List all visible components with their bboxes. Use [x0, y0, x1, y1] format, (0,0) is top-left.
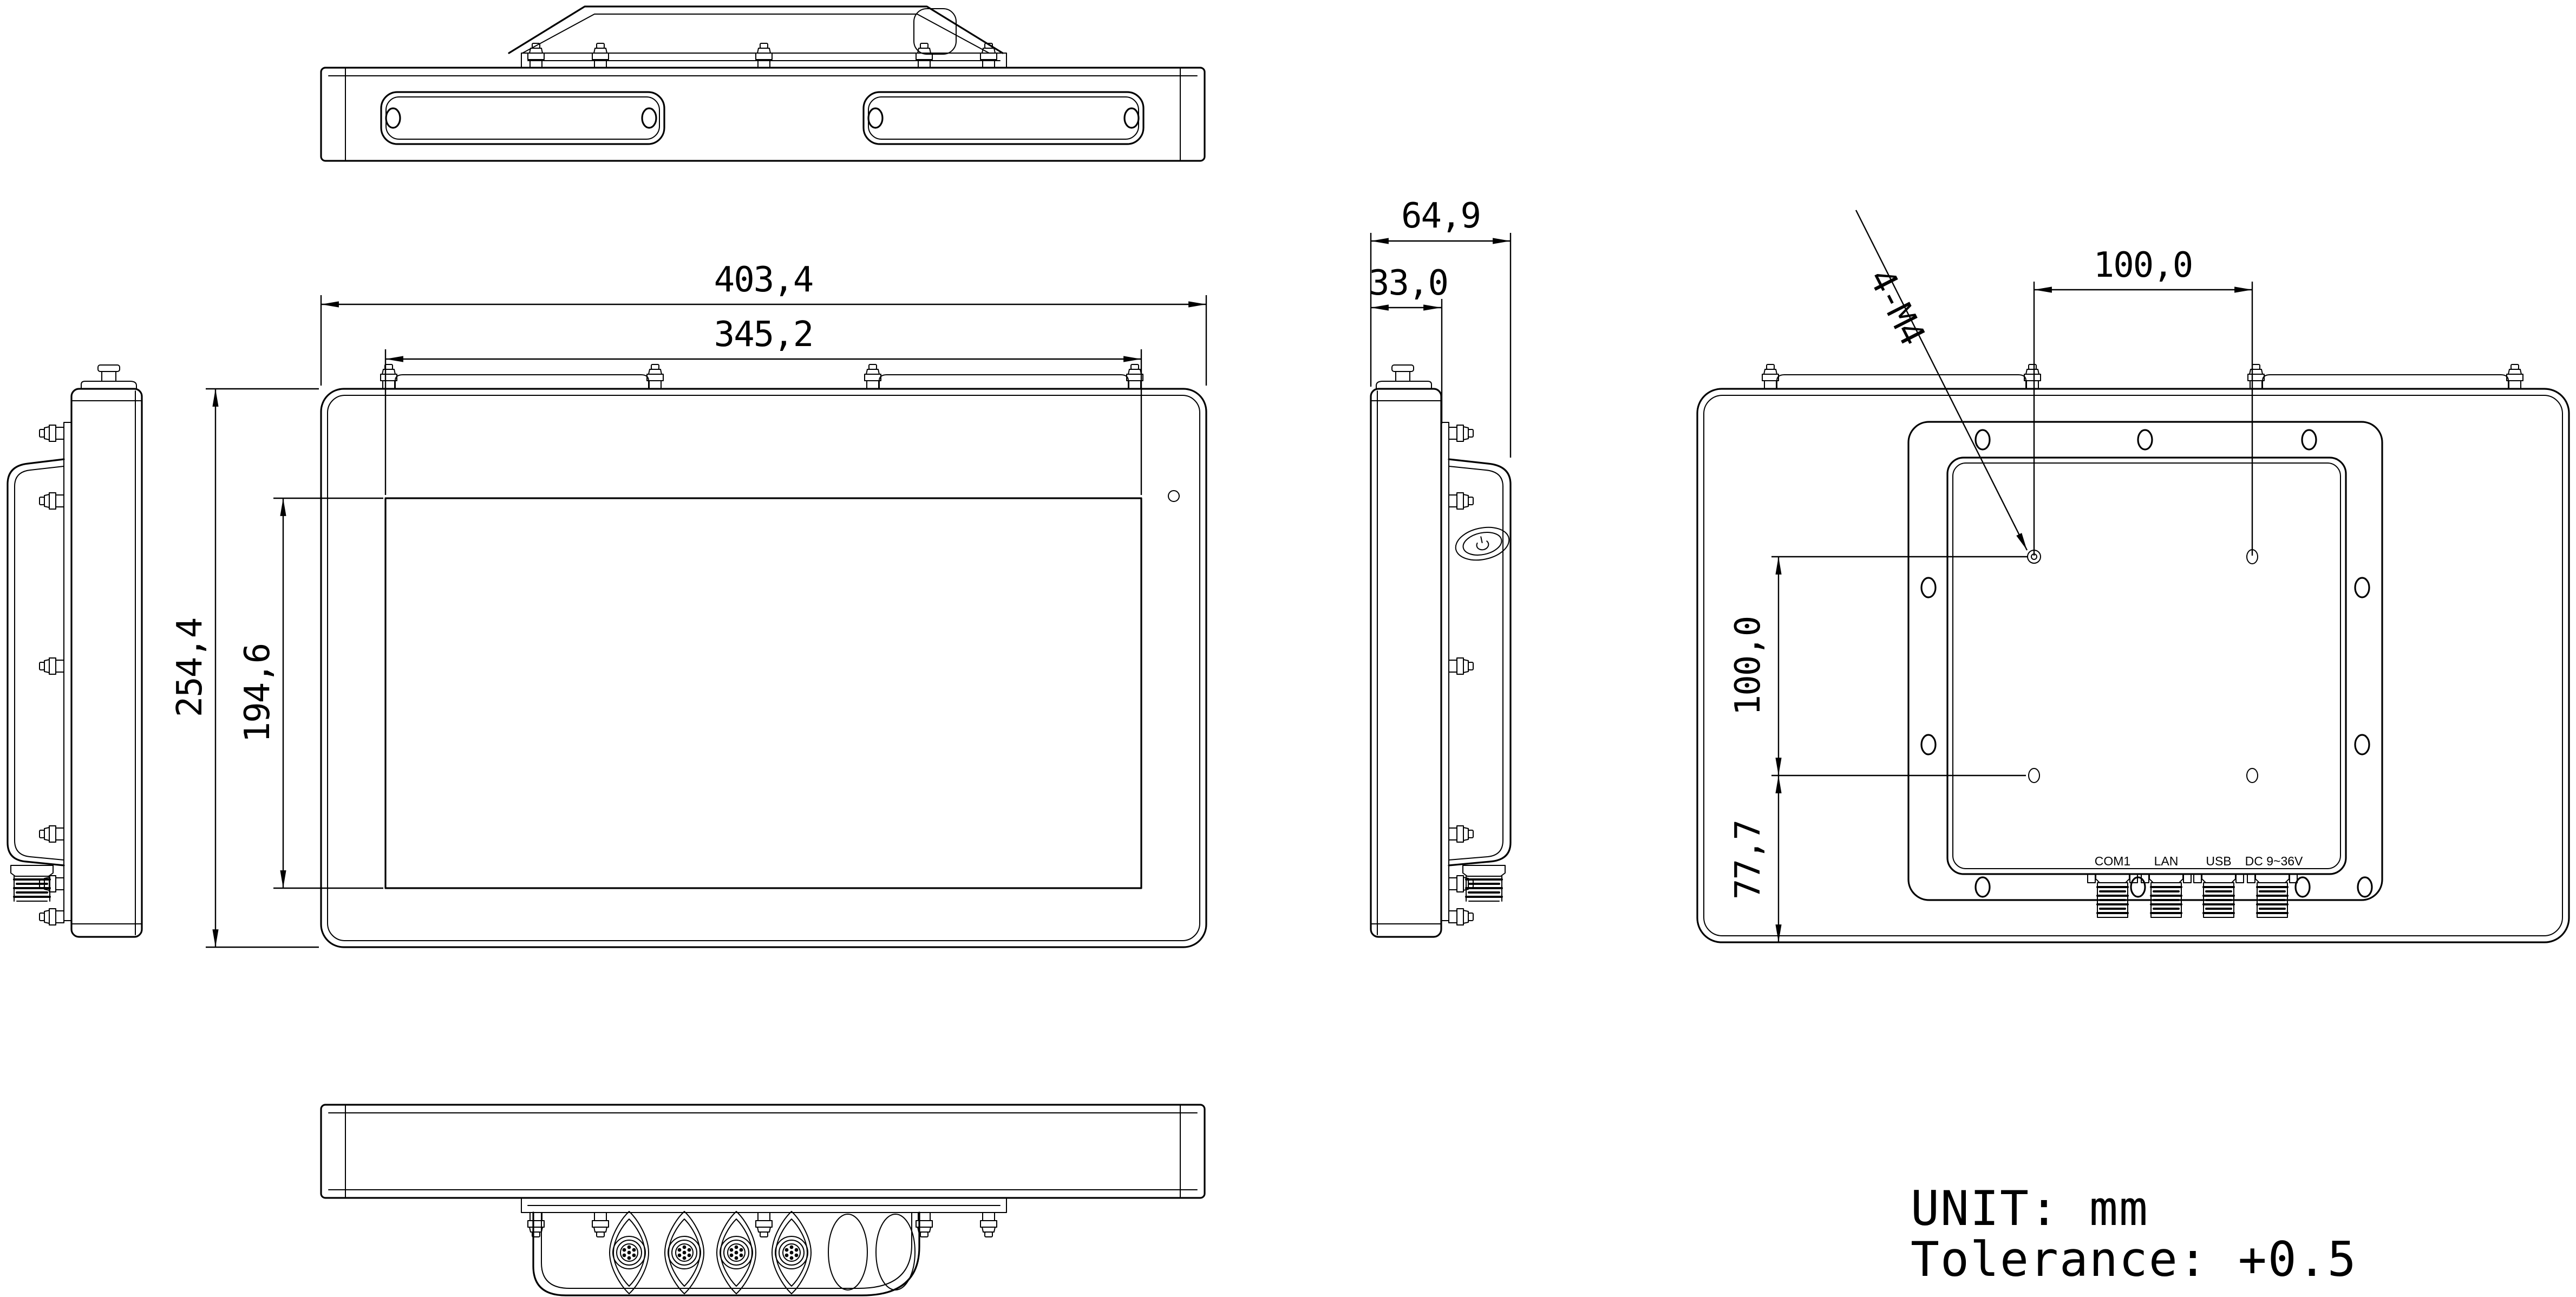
- m12-connector-icon: [610, 1211, 649, 1294]
- screw-icon: [647, 364, 663, 389]
- drawing-sheet: 403,4 345,2 254,4 194,6: [0, 0, 2576, 1297]
- top-view: [321, 6, 1205, 161]
- screw-icon: [40, 826, 64, 842]
- dim-overall-height-label: 254,4: [170, 618, 210, 718]
- dim-overall-width-label: 403,4: [714, 260, 813, 300]
- drawing-notes: UNIT: mm Tolerance: +0.5: [1911, 1181, 2357, 1287]
- front-view: [321, 364, 1206, 947]
- oval-hole-icon: [2138, 430, 2152, 449]
- screw-icon: [40, 909, 64, 925]
- oval-hole-icon: [386, 108, 400, 128]
- screw-icon: [1449, 425, 1473, 441]
- top-view-flange: [521, 43, 1006, 68]
- screw-icon: [1449, 826, 1473, 842]
- right-side-view: [1371, 365, 1512, 937]
- oval-hole-icon: [2355, 578, 2369, 597]
- oval-hole-icon: [2355, 735, 2369, 754]
- clamp-bracket: [1777, 375, 2026, 388]
- port-label-usb: USB: [2206, 854, 2231, 868]
- connector-com1: [2088, 874, 2137, 917]
- side-flange: [1441, 422, 1449, 921]
- light-sensor-icon: [1168, 491, 1179, 501]
- dim-front-depth-label: 33,0: [1369, 263, 1448, 303]
- connector-usb: [2194, 874, 2244, 917]
- dim-total-depth-label: 64,9: [1401, 196, 1480, 236]
- rear-enclosure-recess-inner: [1953, 463, 2340, 869]
- screw-icon: [40, 493, 64, 509]
- depth-dimensions: 64,9 33,0: [1369, 196, 1511, 458]
- clamp-bracket: [395, 375, 649, 388]
- front-top-clamps: [381, 364, 1143, 389]
- side-screws: [40, 425, 64, 925]
- callout-vesa-thread-label: 4-M4: [1861, 263, 1932, 351]
- vesa-hole-icon: [2247, 768, 2258, 783]
- m12-connector-icon: [772, 1211, 811, 1294]
- top-recess-right: [864, 92, 1143, 144]
- dim-vesa-width: 100,0: [2034, 245, 2252, 556]
- screw-icon: [592, 1213, 609, 1237]
- enclosure-screw-holes: [1921, 430, 2372, 897]
- screw-icon: [756, 1213, 772, 1237]
- screw-icon: [528, 43, 544, 68]
- side-panel: [71, 389, 142, 937]
- rear-panel-inner-line: [1704, 395, 2562, 936]
- bottom-view-flange: [521, 1198, 1006, 1237]
- rear-view-dimensions: 100,0 100,0 77,7 4-M4: [1728, 210, 2252, 942]
- dim-vesa-bottom-offset: 77,7: [1728, 775, 1879, 942]
- vesa-hole-icon: [2029, 768, 2039, 783]
- screw-icon: [592, 43, 609, 68]
- dim-display-width-label: 345,2: [714, 315, 813, 355]
- side-bottom-connector: [1463, 865, 1505, 901]
- dim-display-height-label: 194,6: [238, 644, 278, 743]
- rear-top-clamps: [1762, 364, 2523, 389]
- knockout-hole-icon: [828, 1214, 867, 1290]
- screw-icon: [980, 1213, 997, 1237]
- screw-icon: [1127, 364, 1143, 389]
- clamp-bracket: [2263, 375, 2508, 388]
- front-panel-inner-line: [328, 395, 1200, 941]
- oval-hole-icon: [1124, 108, 1139, 128]
- screw-icon: [40, 658, 64, 674]
- screw-icon: [865, 364, 881, 389]
- dim-vesa-width-label: 100,0: [2094, 245, 2193, 285]
- vesa-mount-holes: [2028, 550, 2258, 783]
- bottom-view-enclosure: [533, 1211, 919, 1295]
- screw-icon: [1449, 658, 1473, 674]
- tolerance-note: Tolerance: +0.5: [1911, 1231, 2357, 1287]
- dim-vesa-height: 100,0: [1728, 557, 2028, 775]
- dim-vesa-bottom-offset-label: 77,7: [1728, 820, 1768, 900]
- top-view-panel: [321, 68, 1205, 161]
- technical-drawing: 403,4 345,2 254,4 194,6: [0, 0, 2576, 1297]
- mounting-screws: [528, 1213, 997, 1237]
- screw-icon: [2248, 364, 2264, 389]
- rear-view: COM1 LAN USB DC 9~36V: [1697, 364, 2569, 942]
- bottom-view: [321, 1105, 1205, 1295]
- oval-hole-icon: [2358, 877, 2372, 897]
- top-view-enclosure: [509, 6, 1003, 54]
- dim-display-height: 194,6: [238, 498, 383, 888]
- display-area: [385, 498, 1141, 888]
- side-top-clamp: [1376, 365, 1431, 389]
- screw-icon: [916, 43, 932, 68]
- rear-panel-outline: [1697, 389, 2569, 942]
- oval-hole-icon: [1921, 578, 1936, 597]
- mounting-screws: [528, 43, 997, 68]
- screw-icon: [1449, 493, 1473, 509]
- oval-hole-icon: [1921, 735, 1936, 754]
- connector-dc: [2247, 874, 2297, 917]
- top-recess-left: [381, 92, 664, 144]
- dim-display-width: 345,2: [385, 315, 1141, 495]
- unit-note: UNIT: mm: [1911, 1181, 2149, 1236]
- dim-vesa-height-label: 100,0: [1728, 617, 1768, 716]
- screw-icon: [381, 364, 397, 389]
- side-top-clamp: [81, 365, 136, 389]
- screw-icon: [756, 43, 772, 68]
- dim-front-depth: 33,0: [1369, 263, 1448, 423]
- side-screws: [1449, 425, 1473, 925]
- rear-enclosure-recess: [1947, 458, 2346, 874]
- port-label-lan: LAN: [2154, 854, 2179, 868]
- oval-hole-icon: [1976, 430, 1990, 449]
- side-panel: [1371, 389, 1441, 937]
- front-view-dimensions: 403,4 345,2 254,4 194,6: [170, 260, 1206, 947]
- side-enclosure-outline: [1449, 459, 1511, 865]
- rear-enclosure-outline: [1908, 422, 2382, 900]
- screw-icon: [1762, 364, 1779, 389]
- rear-io-connectors: COM1 LAN USB DC 9~36V: [2088, 854, 2303, 917]
- oval-hole-icon: [642, 108, 656, 128]
- front-panel-outline: [321, 389, 1206, 947]
- port-label-com1: COM1: [2095, 854, 2130, 868]
- callout-vesa-thread: 4-M4: [1856, 210, 2027, 550]
- m12-connector-icon: [717, 1211, 756, 1294]
- port-label-dc: DC 9~36V: [2245, 854, 2303, 868]
- knockout-hole-icon: [876, 1214, 915, 1290]
- screw-icon: [1449, 909, 1473, 925]
- left-side-view: [8, 365, 142, 937]
- side-bottom-connector: [11, 865, 53, 901]
- connector-lan: [2141, 874, 2191, 917]
- m12-connector-icon: [665, 1211, 704, 1294]
- bottom-view-panel: [321, 1105, 1205, 1198]
- oval-hole-icon: [2302, 430, 2316, 449]
- clamp-bracket: [879, 375, 1128, 388]
- oval-hole-icon: [1976, 877, 1990, 897]
- screw-icon: [40, 425, 64, 441]
- oval-hole-icon: [868, 108, 882, 128]
- side-flange: [64, 422, 71, 921]
- screw-icon: [2024, 364, 2041, 389]
- screw-icon: [2507, 364, 2523, 389]
